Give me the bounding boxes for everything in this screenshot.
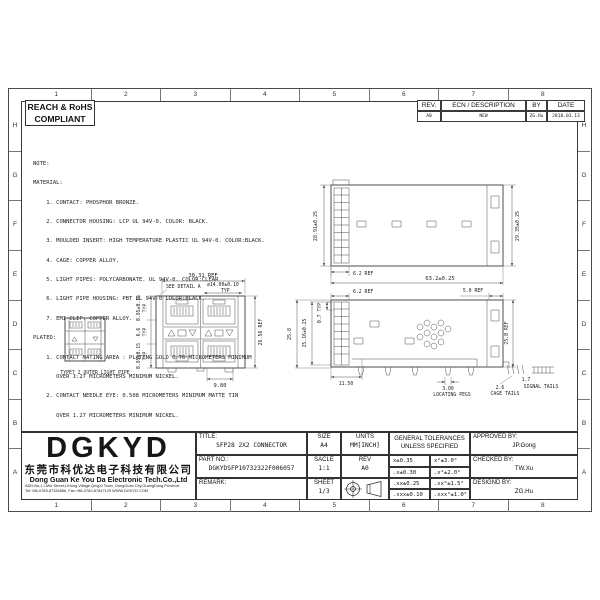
front-depth-dim: 11.50 <box>339 381 354 387</box>
designed-label: DESIGND BY: <box>471 479 577 487</box>
side-height-dim: 25.8 <box>287 328 293 340</box>
side-view: 6.2 REF 5.0 REF 0.7 TYP 25.16±0.25 25.8 … <box>287 288 558 398</box>
tol-linear-0: x±0.35 <box>389 455 430 467</box>
approved-label: APPROVED BY: <box>471 433 577 441</box>
cage-face-walls <box>163 296 238 368</box>
rev-label: REV <box>342 456 388 464</box>
part-no-value: DGKYDSFP10732322F006057 <box>197 465 306 472</box>
front-view: 30.31 REF SEE DETAIL A ⌀14.00±0.10 TYP 8… <box>136 273 264 389</box>
top-view-left-height-dim: 28.91±0.25 <box>313 211 319 241</box>
locating-pegs <box>358 367 474 375</box>
light-pipe-view: TYPE7_2 OUTER LIGHT PIPE <box>60 318 129 376</box>
title-value: SFP28 2X2 CONNECTOR <box>197 442 306 449</box>
engineering-drawing-sheet: 1 2 3 4 5 6 7 8 1 2 3 4 5 6 7 8 H G F E … <box>0 0 600 600</box>
designed-value: ZG.Hu <box>471 488 577 495</box>
typ-label: TYP <box>143 328 149 337</box>
projection-cell <box>341 478 389 500</box>
vent-holes <box>417 320 451 349</box>
sheet-label: SHEET <box>308 479 340 487</box>
drawing-views: 30.31 REF SEE DETAIL A ⌀14.00±0.10 TYP 8… <box>0 0 600 600</box>
port-pitch-dim: ⌀14.00±0.10 <box>207 282 239 288</box>
side-clips <box>354 321 414 344</box>
typ-label: TYP <box>143 304 149 313</box>
cage-tail-dim: 2.6 <box>496 385 505 391</box>
tol-angular-3: .xxx°±1.0° <box>430 489 470 500</box>
company-block: DGKYD 东莞市科优达电子科技有限公司 Dong Guan Ke You Da… <box>21 432 196 500</box>
designed-cell: DESIGND BY: ZG.Hu <box>470 478 578 500</box>
checked-label: CHECKED BY: <box>471 456 577 464</box>
overall-length-dim: 63.2±0.25 <box>425 276 454 282</box>
bottom-port-height-dim: 8.95±0.15 <box>136 343 142 369</box>
tol-angular-0: x°±3.0° <box>430 455 470 467</box>
tolerances-title-2: UNLESS SPECIFIED <box>390 443 469 451</box>
signal-tail-label: SIGNAL TAILS <box>524 384 559 390</box>
cage-side-outline <box>331 300 503 367</box>
tol-angular-2: .xx°±1.5° <box>430 478 470 489</box>
rear-slots <box>491 196 499 253</box>
typ-label: TYP <box>143 352 149 361</box>
light-pipe-label: TYPE7_2 OUTER LIGHT PIPE <box>60 370 129 376</box>
units-value: MM[INCH] <box>342 442 388 449</box>
bottom-step <box>352 359 477 367</box>
rear-height-dim: 25.8 REF <box>504 321 510 344</box>
tol-angular-1: .x°±2.0° <box>430 467 470 479</box>
title-block: DGKYD 东莞市科优达电子科技有限公司 Dong Guan Ke You Da… <box>21 431 578 499</box>
title-label: TITLE: <box>197 433 306 441</box>
units-label: UNITS <box>342 433 388 441</box>
tol-linear-1: .x±0.30 <box>389 467 430 479</box>
foot-spacing-dim: 9.80 <box>214 383 227 389</box>
latch-bump <box>333 180 349 185</box>
top-view-right-height-dim: 29.35±0.25 <box>515 211 521 241</box>
fin-pitch-dim: 0.7 TYP <box>317 303 323 323</box>
rev-value: A0 <box>342 465 388 472</box>
approved-cell: APPROVED BY: JP.Gong <box>470 432 578 455</box>
remark-label: REMARK: <box>197 479 306 487</box>
company-logo: DGKYD <box>22 433 195 464</box>
signal-tail-dim: 1.7 <box>522 377 531 383</box>
rear-bezel-dim: 5.0 REF <box>463 288 483 294</box>
third-angle-projection-icon <box>343 479 387 499</box>
mid-height-dim: 6.6 <box>136 328 142 337</box>
mounting-feet <box>168 368 233 372</box>
rear-features <box>487 300 499 367</box>
side-bezel-dim: 6.2 REF <box>353 289 373 295</box>
rev-cell: REV A0 <box>341 455 389 478</box>
size-label: SIZE <box>308 433 340 441</box>
cage-port <box>201 299 237 362</box>
scale-value: 1:1 <box>308 465 340 472</box>
size-cell: SIZE A4 <box>307 432 341 455</box>
front-height-dim: 26.56 REF <box>258 318 264 345</box>
tol-linear-3: .xxx±0.10 <box>389 489 430 500</box>
part-no-cell: PART NO.: DGKYDSFP10732322F006057 <box>196 455 307 478</box>
checked-cell: CHECKED BY: TW.Xu <box>470 455 578 478</box>
tol-linear-2: .xx±0.25 <box>389 478 430 489</box>
tolerances-header-cell: GENERAL TOLERANCES UNLESS SPECIFIED <box>389 432 470 455</box>
checked-value: TW.Xu <box>471 465 577 472</box>
side-inner-height-dim: 25.16±0.25 <box>302 318 308 347</box>
part-no-label: PART NO.: <box>197 456 306 464</box>
front-width-dim: 30.31 REF <box>188 273 217 279</box>
size-value: A4 <box>308 442 340 449</box>
tolerances-title-1: GENERAL TOLERANCES <box>390 433 469 443</box>
units-cell: UNITS MM[INCH] <box>341 432 389 455</box>
light-pipe-walls <box>65 318 105 361</box>
company-contact: Tel:+86-0769-87334656, Fax:+86-0769-8784… <box>22 489 195 494</box>
signal-tails <box>532 367 554 373</box>
title-cell: TITLE: SFP28 2X2 CONNECTOR <box>196 432 307 455</box>
peg-dim: 3.00 <box>442 386 454 392</box>
retention-clips <box>357 221 471 227</box>
top-bezel-dim: 6.2 REF <box>353 271 373 277</box>
cage-tail-label: CAGE TAILS <box>491 391 520 397</box>
top-view: 28.91±0.25 29.35±0.25 6.2 REF 63.2±0.25 <box>313 180 521 285</box>
cage-port <box>164 299 200 362</box>
top-port-height-dim: 8.95±0.15 <box>136 295 142 321</box>
scale-label: SACLE <box>308 456 340 464</box>
detail-callout: SEE DETAIL A <box>166 284 201 290</box>
remark-cell: REMARK: <box>196 478 307 500</box>
sheet-value: 1/3 <box>308 488 340 495</box>
approved-value: JP.Gong <box>471 442 577 449</box>
scale-cell: SACLE 1:1 <box>307 455 341 478</box>
peg-label: LOCATING PEGS <box>433 392 471 398</box>
cage-tails <box>503 362 524 374</box>
sheet-cell: SHEET 1/3 <box>307 478 341 500</box>
